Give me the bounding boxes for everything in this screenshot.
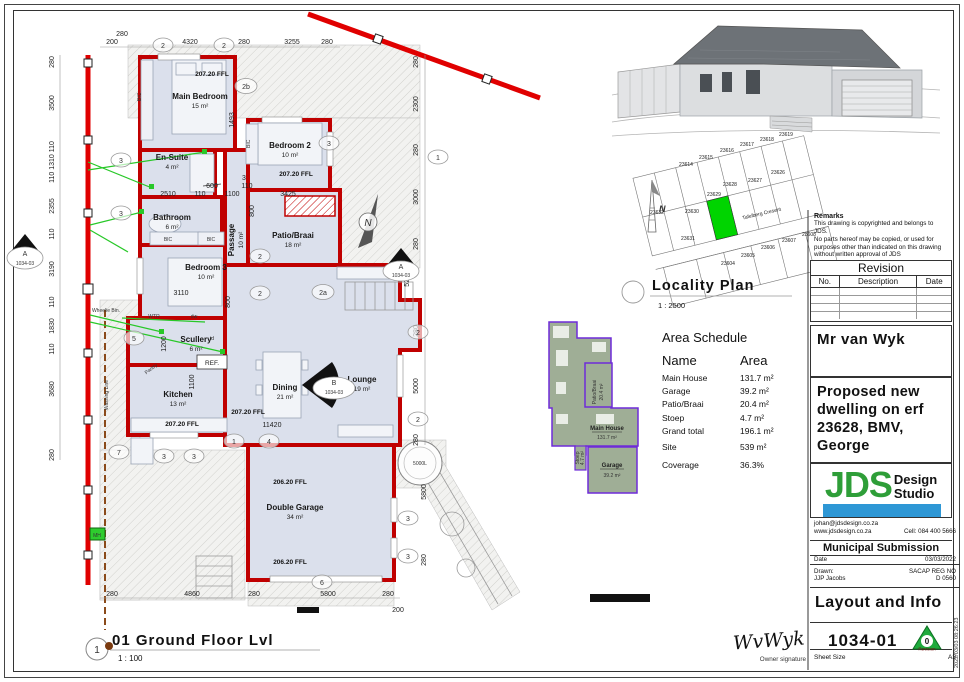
schedule-row-label: Garage (662, 385, 740, 398)
schedule-col-name: Name (662, 353, 740, 368)
svg-text:1034-03: 1034-03 (325, 390, 344, 396)
svg-text:4320: 4320 (182, 39, 198, 46)
svg-text:207.20 FFL: 207.20 FFL (231, 409, 265, 416)
floor-scale: 1 : 100 (118, 654, 142, 663)
svg-text:5000L: 5000L (413, 461, 427, 467)
sheet-size-row: Sheet Size A3 (810, 652, 960, 663)
drawn-value: JJP Jacobs (814, 575, 846, 582)
svg-text:3: 3 (162, 454, 166, 461)
svg-text:280: 280 (321, 39, 333, 46)
svg-text:2b: 2b (242, 84, 250, 91)
window-1 (700, 74, 712, 92)
svg-text:3: 3 (192, 454, 196, 461)
svg-text:Revision: Revision (918, 647, 936, 652)
schedule-row-value: 20.4 m² (740, 398, 774, 411)
svg-text:23614: 23614 (679, 162, 693, 168)
svg-text:A: A (23, 251, 28, 258)
svg-text:600: 600 (206, 183, 218, 190)
schedule-row-label: Stoep (662, 412, 740, 425)
drawing-sheet: 5000L MH 207.20 FFL Main Bedroom 15 m² E… (0, 0, 964, 682)
drawing-number: 1034-01 (810, 623, 897, 651)
svg-text:3: 3 (327, 141, 331, 148)
svg-text:td: td (210, 336, 214, 342)
floor-title: 01 Ground Floor Lvl (112, 632, 274, 649)
svg-text:Dining: Dining (273, 383, 298, 392)
owner-signature-label: Owner signature (700, 656, 806, 663)
svg-text:3000: 3000 (413, 189, 420, 205)
svg-text:10 m²: 10 m² (238, 231, 245, 248)
svg-text:0: 0 (925, 637, 930, 646)
svg-text:Bedroom 2: Bedroom 2 (269, 141, 311, 150)
svg-text:11420: 11420 (263, 422, 282, 429)
svg-text:1034-03: 1034-03 (16, 261, 35, 267)
schedule-row-label: Coverage (662, 459, 740, 472)
rev-col-description: Description (840, 276, 918, 287)
svg-text:Bathroom: Bathroom (153, 213, 191, 222)
svg-text:2a: 2a (319, 290, 327, 297)
svg-text:23629: 23629 (707, 192, 721, 198)
svg-text:N: N (364, 218, 372, 229)
svg-text:Main House: Main House (590, 426, 624, 432)
svg-text:5800: 5800 (320, 591, 336, 598)
schedule-row-label: Grand total (662, 425, 740, 438)
schedule-row-label: Patio/Braai (662, 398, 740, 411)
svg-text:Patio/Braai: Patio/Braai (592, 380, 598, 404)
schedule-row-value: 39.2 m² (740, 385, 774, 398)
rev-col-date: Date (917, 276, 951, 287)
svg-text:280: 280 (413, 434, 420, 446)
svg-text:3680: 3680 (49, 381, 56, 397)
svg-text:206.20 FFL: 206.20 FFL (273, 559, 307, 566)
svg-text:6 m²: 6 m² (166, 224, 180, 231)
svg-text:Passage: Passage (227, 223, 236, 256)
svg-text:13 m²: 13 m² (170, 401, 187, 408)
sheet-size-label: Sheet Size (814, 654, 845, 661)
svg-text:Bedroom 3: Bedroom 3 (185, 263, 227, 272)
svg-text:110: 110 (49, 228, 56, 239)
svg-text:2: 2 (416, 330, 420, 337)
svg-text:800: 800 (249, 205, 256, 217)
svg-text:280: 280 (421, 554, 428, 566)
date-label: Date (814, 556, 827, 563)
svg-text:5800: 5800 (421, 484, 428, 500)
mini-area-diagram: Patio/Braai 20.4 m² Main House 131.7 m² … (549, 322, 638, 493)
svg-text:MH: MH (93, 533, 101, 539)
svg-text:BIC: BIC (137, 92, 143, 101)
svg-text:7: 7 (117, 450, 121, 457)
svg-text:23627: 23627 (748, 178, 762, 184)
locality-north-icon: N (648, 180, 666, 232)
scale-bar-2 (590, 594, 650, 602)
front-door (746, 70, 760, 94)
submission-type: Municipal Submission (810, 540, 952, 556)
svg-text:206.20 FFL: 206.20 FFL (273, 479, 307, 486)
svg-text:280: 280 (106, 591, 118, 598)
svg-text:3: 3 (242, 175, 246, 182)
svg-text:5: 5 (132, 336, 136, 343)
svg-text:280: 280 (382, 591, 394, 598)
svg-text:19 m²: 19 m² (354, 386, 371, 393)
svg-text:1493: 1493 (229, 112, 236, 128)
revision-triangle: 0 Revision (912, 625, 942, 651)
svg-text:1: 1 (436, 155, 440, 162)
svg-text:Garage: Garage (602, 463, 623, 469)
svg-text:207.20 FFL: 207.20 FFL (279, 171, 313, 178)
svg-text:3110: 3110 (173, 290, 188, 297)
area-schedule: Area Schedule Name Area Main House Garag… (662, 330, 808, 472)
schedule-row-label: Site (662, 441, 740, 454)
schedule-row-value: 196.1 m² (740, 425, 774, 438)
svg-text:A: A (399, 264, 404, 271)
svg-text:3: 3 (119, 158, 123, 165)
braai-counter (285, 196, 335, 216)
svg-text:18 m²: 18 m² (285, 242, 302, 249)
locality-plan: 23614 23615 23616 23617 23618 23619 2363… (622, 132, 838, 310)
logo-design-text: Design (894, 473, 937, 487)
svg-text:21 m²: 21 m² (277, 394, 294, 401)
svg-text:110: 110 (49, 343, 56, 354)
svg-text:Main Bedroom: Main Bedroom (172, 92, 228, 101)
drawing-number-row: 1034-01 0 Revision (810, 623, 952, 650)
svg-text:1: 1 (232, 439, 236, 446)
svg-text:10 m²: 10 m² (282, 152, 299, 159)
svg-text:131.7 m²: 131.7 m² (597, 435, 617, 441)
svg-text:BIC: BIC (164, 237, 173, 243)
svg-text:110: 110 (241, 183, 252, 190)
svg-text:23616: 23616 (720, 148, 734, 154)
logo-studio-text: Studio (894, 487, 937, 501)
rain-tank: 5000L (398, 441, 442, 485)
svg-text:3425: 3425 (280, 191, 296, 198)
svg-text:23628: 23628 (723, 182, 737, 188)
schedule-row-value: 36.3% (740, 459, 774, 472)
svg-text:3500: 3500 (49, 95, 56, 111)
svg-text:110 1310 110: 110 1310 110 (49, 141, 56, 183)
svg-text:N: N (659, 204, 666, 214)
schedule-row-value: 4.7 m² (740, 412, 774, 425)
svg-text:6 m²: 6 m² (190, 346, 204, 353)
sacap-number: D 0560 (909, 575, 956, 582)
svg-text:2300: 2300 (413, 96, 420, 112)
mini-garage (588, 447, 637, 493)
remarks-title: Remarks (814, 213, 948, 220)
svg-text:Tafelberg Cresent: Tafelberg Cresent (742, 207, 782, 222)
locality-scale: 1 : 2500 (658, 301, 685, 310)
svg-text:4860: 4860 (184, 591, 200, 598)
fence (618, 64, 680, 118)
revision-title: Revision (811, 261, 951, 276)
svg-text:23604: 23604 (721, 261, 735, 267)
revision-table: Revision No. Description Date (810, 260, 952, 322)
svg-text:Wheelie Bin.: Wheelie Bin. (92, 308, 120, 314)
svg-text:23631: 23631 (681, 236, 695, 242)
svg-text:280: 280 (413, 238, 420, 250)
svg-text:23605: 23605 (741, 253, 755, 259)
svg-text:280: 280 (413, 56, 420, 68)
stove (131, 438, 153, 464)
svg-text:B: B (332, 380, 337, 387)
svg-text:23607: 23607 (782, 238, 796, 244)
svg-text:23619: 23619 (779, 132, 793, 138)
svg-text:110: 110 (194, 191, 205, 198)
schedule-col-area: Area (740, 353, 767, 368)
drawn-label: Drawn: (814, 568, 846, 575)
svg-text:23615: 23615 (699, 155, 713, 161)
svg-text:200: 200 (392, 607, 404, 614)
svg-text:Double Garage: Double Garage (267, 503, 324, 512)
roof (674, 26, 900, 68)
svg-text:BIC: BIC (207, 237, 216, 243)
svg-text:En-Suite: En-Suite (156, 153, 189, 162)
svg-text:23618: 23618 (760, 137, 774, 143)
svg-text:1100: 1100 (189, 374, 196, 389)
render-3d (612, 26, 940, 136)
svg-text:110: 110 (49, 296, 56, 307)
svg-text:2: 2 (222, 43, 226, 50)
date-value: 03/03/2022 (925, 556, 956, 563)
plot-timestamp: 2022/03/03 08:26:23 (954, 618, 960, 668)
project-description: Proposed new dwelling on erf 23628, BMV,… (810, 377, 952, 463)
svg-text:800: 800 (225, 296, 232, 308)
svg-text:34 m²: 34 m² (287, 514, 304, 521)
window-2 (722, 72, 732, 92)
svg-text:200: 200 (106, 39, 118, 46)
svg-text:280: 280 (413, 144, 420, 156)
svg-text:280: 280 (49, 449, 56, 461)
svg-text:4.7 m²: 4.7 m² (580, 451, 586, 466)
manhole: MH (90, 528, 105, 540)
svg-text:280: 280 (248, 591, 260, 598)
erf-23628-highlight (707, 196, 738, 240)
contact-web: www.jdsdesign.co.za (814, 528, 871, 536)
rev-col-no: No. (811, 276, 840, 287)
svg-text:20.4 m²: 20.4 m² (599, 383, 605, 400)
svg-text:15 m²: 15 m² (192, 103, 209, 110)
svg-text:23630: 23630 (685, 209, 699, 215)
logo-blue-bar (823, 504, 941, 517)
svg-text:4 m²: 4 m² (166, 164, 180, 171)
svg-text:3: 3 (406, 554, 410, 561)
svg-text:6: 6 (320, 580, 324, 587)
svg-text:2: 2 (161, 43, 165, 50)
svg-text:23606: 23606 (761, 245, 775, 251)
contact-cell: Cell: 084 400 5666 (904, 528, 956, 536)
steps-3d (770, 116, 812, 132)
locality-title: Locality Plan (652, 278, 754, 294)
svg-text:2: 2 (258, 254, 262, 261)
date-row: Date 03/03/2022 (810, 555, 960, 565)
svg-text:Scullery: Scullery (180, 335, 212, 344)
svg-text:WTR: WTR (148, 314, 160, 320)
svg-text:BIC: BIC (246, 139, 252, 148)
sacap-label: SACAP REG NO (909, 568, 956, 575)
svg-text:280: 280 (116, 31, 128, 38)
remarks: Remarks This drawing is copyrighted and … (814, 213, 948, 259)
drawn-row: Drawn: JJP Jacobs SACAP REG NO D 0560 (810, 567, 960, 588)
svg-text:REF.: REF. (205, 360, 219, 367)
sheet-title: Layout and Info (810, 586, 952, 623)
schedule-row-label: Main House (662, 372, 740, 385)
svg-text:2355: 2355 (49, 198, 56, 214)
svg-text:5000: 5000 (413, 378, 420, 394)
remarks-body: This drawing is copyrighted and belongs … (814, 220, 948, 259)
svg-text:1830: 1830 (49, 318, 56, 334)
schedule-row-value: 539 m² (740, 441, 774, 454)
svg-text:10 m²: 10 m² (198, 274, 215, 281)
svg-text:3: 3 (406, 516, 410, 523)
svg-text:2: 2 (258, 291, 262, 298)
svg-text:1034-03: 1034-03 (392, 273, 411, 279)
svg-text:207.20 FFL: 207.20 FFL (195, 71, 229, 78)
room-garage (248, 445, 394, 580)
svg-text:Washing Line: Washing Line (104, 380, 110, 410)
svg-text:207.20 FFL: 207.20 FFL (165, 421, 199, 428)
svg-text:280: 280 (49, 56, 56, 68)
area-schedule-title: Area Schedule (662, 330, 808, 345)
svg-text:1200: 1200 (161, 336, 168, 352)
logo-jds-text: JDS (825, 469, 892, 501)
scale-bar-1 (297, 607, 319, 613)
svg-text:39.2 m²: 39.2 m² (604, 473, 621, 479)
svg-text:1100: 1100 (224, 191, 239, 198)
svg-text:dw: dw (191, 314, 198, 320)
svg-text:3: 3 (119, 211, 123, 218)
svg-text:4: 4 (267, 439, 271, 446)
schedule-row-value: 131.7 m² (740, 372, 774, 385)
section-marker-a-left: A 1034-03 (7, 234, 43, 269)
svg-text:23626: 23626 (771, 170, 785, 176)
svg-text:2: 2 (416, 417, 420, 424)
svg-text:23617: 23617 (740, 142, 754, 148)
svg-text:3255: 3255 (284, 39, 300, 46)
sofa-2 (338, 425, 393, 437)
svg-text:1: 1 (94, 645, 100, 656)
client-name: Mr van Wyk (810, 325, 952, 377)
svg-text:2510: 2510 (160, 191, 176, 198)
svg-text:Patio/Braai: Patio/Braai (272, 231, 314, 240)
svg-text:3190: 3190 (49, 261, 56, 277)
svg-text:280: 280 (238, 39, 250, 46)
contact-email: johan@jdsdesign.co.za (814, 520, 956, 528)
jds-logo: JDS Design Studio (810, 463, 952, 518)
svg-text:Kitchen: Kitchen (163, 390, 192, 399)
